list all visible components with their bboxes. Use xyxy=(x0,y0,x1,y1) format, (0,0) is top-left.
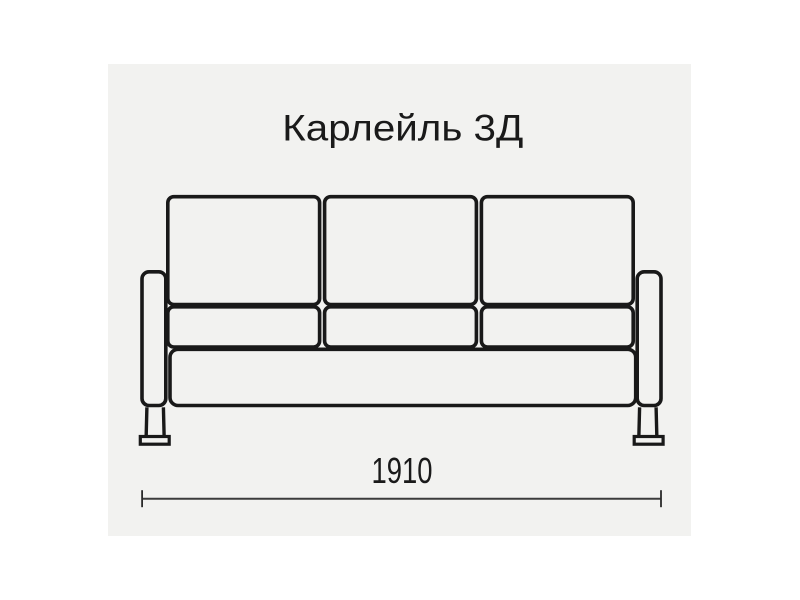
svg-text:Карлейль 3Д: Карлейль 3Д xyxy=(282,108,523,149)
svg-text:1910: 1910 xyxy=(372,450,433,491)
